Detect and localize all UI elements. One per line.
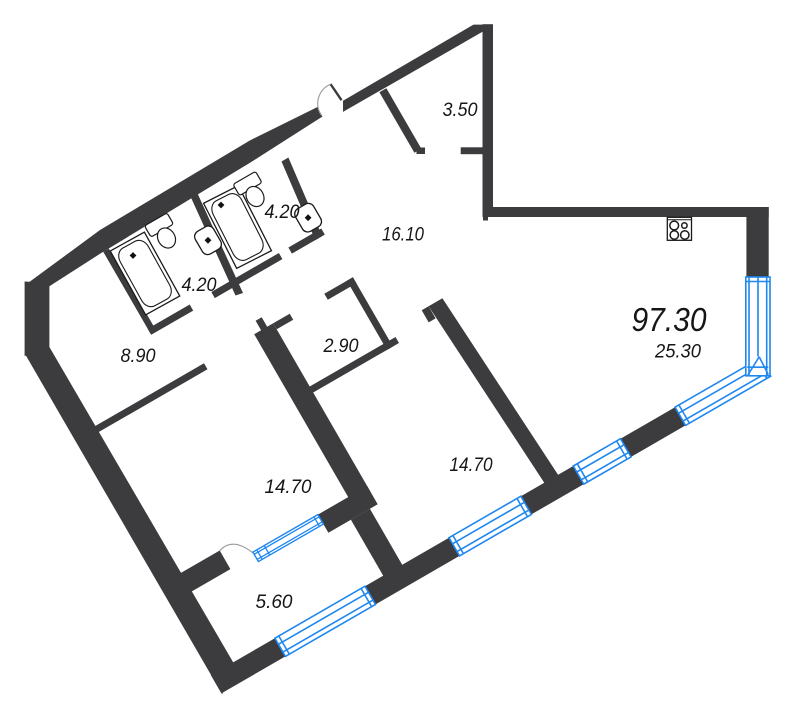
svg-text:4.20: 4.20 xyxy=(265,202,300,223)
svg-text:8.90: 8.90 xyxy=(121,346,156,367)
svg-text:2.90: 2.90 xyxy=(323,336,359,357)
svg-text:14.70: 14.70 xyxy=(450,455,493,476)
svg-text:97.30: 97.30 xyxy=(632,301,708,338)
svg-text:16.10: 16.10 xyxy=(382,225,424,246)
svg-text:3.50: 3.50 xyxy=(443,100,478,121)
svg-text:14.70: 14.70 xyxy=(265,477,312,498)
svg-text:25.30: 25.30 xyxy=(654,341,701,363)
svg-text:4.20: 4.20 xyxy=(182,275,217,296)
svg-text:5.60: 5.60 xyxy=(256,592,293,613)
